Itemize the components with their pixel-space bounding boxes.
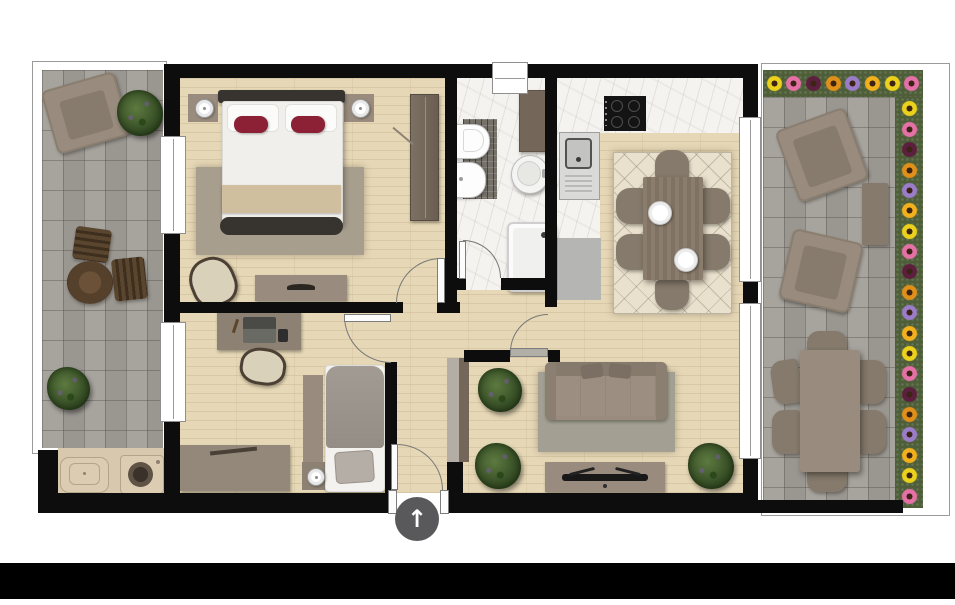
partition-cabinet-brown bbox=[459, 358, 469, 462]
sofa-arm bbox=[656, 362, 667, 420]
wall-living-post bbox=[548, 350, 560, 362]
kitchen-sink-unit bbox=[559, 132, 600, 200]
flower-icon bbox=[901, 100, 918, 117]
outdoor-dining-table bbox=[800, 350, 860, 472]
flower-icon bbox=[805, 75, 822, 92]
armchair-seat bbox=[794, 245, 847, 301]
burner bbox=[628, 100, 640, 112]
wall-partition-stub bbox=[447, 462, 463, 493]
flower-icon bbox=[901, 243, 918, 260]
flower-icon bbox=[901, 141, 918, 158]
bidet bbox=[452, 162, 486, 198]
office-door-leaf bbox=[344, 314, 391, 322]
wall-right-seg bbox=[743, 280, 758, 303]
sofa-arm bbox=[545, 362, 556, 420]
burner bbox=[611, 100, 623, 112]
pen-icon bbox=[232, 319, 239, 333]
flower-icon bbox=[901, 488, 918, 505]
desk bbox=[217, 311, 301, 350]
wall-bedroom-bottom bbox=[180, 302, 403, 313]
wall-bed-bath-divider bbox=[445, 78, 457, 302]
dining-chair bbox=[616, 234, 646, 270]
living-plant bbox=[478, 368, 522, 412]
flower-icon bbox=[901, 386, 918, 403]
sofa-pillow bbox=[608, 363, 631, 379]
wall-living-left bbox=[464, 350, 510, 362]
flower-bed-top bbox=[763, 70, 923, 97]
flower-icon bbox=[901, 406, 918, 423]
bedroom-window bbox=[160, 136, 186, 234]
washer-knob bbox=[156, 460, 160, 464]
flower-icon bbox=[825, 75, 842, 92]
bathroom-door-leaf bbox=[459, 241, 466, 279]
flower-icon bbox=[901, 223, 918, 240]
plate-icon bbox=[674, 248, 698, 272]
sofa bbox=[545, 362, 667, 420]
office-window bbox=[160, 322, 186, 422]
flower-icon bbox=[901, 345, 918, 362]
wall-right-seg bbox=[743, 64, 758, 117]
wall-bath-bottom-left bbox=[445, 278, 466, 290]
terrace-side-table bbox=[862, 183, 888, 245]
flower-icon bbox=[901, 447, 918, 464]
dining-chair bbox=[700, 188, 730, 224]
plate-icon bbox=[648, 201, 672, 225]
entrance-arrow-icon: ↑ bbox=[395, 497, 439, 541]
phone-icon bbox=[278, 329, 288, 342]
sink-basin bbox=[565, 138, 592, 169]
flower-icon bbox=[901, 121, 918, 138]
toilet bbox=[452, 124, 490, 159]
table-lamp-icon bbox=[195, 99, 214, 118]
flower-icon bbox=[901, 426, 918, 443]
outdoor-chair bbox=[858, 360, 886, 404]
wall-bath-right bbox=[545, 78, 557, 307]
basin-inner bbox=[517, 161, 541, 186]
washer-door bbox=[128, 462, 153, 487]
kitchen-terrace-door bbox=[739, 117, 761, 282]
single-bed bbox=[325, 365, 385, 492]
flower-icon bbox=[785, 75, 802, 92]
living-plant bbox=[688, 443, 734, 489]
bed-throw-blanket bbox=[222, 185, 341, 213]
dining-chair bbox=[655, 150, 689, 180]
living-plant bbox=[475, 443, 521, 489]
wall-bottom-right bbox=[443, 493, 758, 513]
armchair-seat bbox=[59, 89, 114, 140]
flower-icon bbox=[844, 75, 861, 92]
flower-icon bbox=[766, 75, 783, 92]
drainboard bbox=[565, 175, 592, 194]
flower-icon bbox=[901, 263, 918, 280]
cooktop bbox=[604, 96, 646, 131]
flower-icon bbox=[901, 304, 918, 321]
tv-sideboard bbox=[545, 462, 665, 492]
laundry-sink bbox=[60, 457, 109, 493]
table-lamp-icon bbox=[351, 99, 370, 118]
cooktop-controls bbox=[605, 101, 607, 126]
bed-footer bbox=[220, 217, 343, 235]
floor-plan-canvas: ↑ bbox=[0, 0, 955, 605]
wall-bottom-terrace-ext bbox=[758, 500, 903, 513]
footer-bar bbox=[0, 563, 955, 599]
red-accent-pillow bbox=[291, 116, 325, 133]
wall-laundry-left bbox=[38, 450, 58, 493]
wardrobe bbox=[410, 94, 439, 221]
slat-chair bbox=[111, 256, 148, 301]
kitchen-base-cabinet bbox=[557, 238, 601, 300]
partition-cabinet-gray bbox=[447, 358, 459, 462]
bathroom-window bbox=[492, 62, 528, 94]
flower-icon bbox=[901, 467, 918, 484]
flower-bed-right bbox=[895, 97, 923, 508]
flower-icon bbox=[901, 182, 918, 199]
burner bbox=[611, 116, 623, 128]
single-bed-duvet bbox=[326, 366, 384, 448]
terrace-shrub bbox=[47, 367, 90, 410]
drain-dot bbox=[83, 472, 86, 475]
flower-icon bbox=[901, 284, 918, 301]
sofa-back bbox=[545, 362, 667, 376]
entrance-arrow-glyph: ↑ bbox=[407, 507, 427, 531]
flower-icon bbox=[901, 325, 918, 342]
entrance-jamb bbox=[440, 490, 449, 514]
wall-left bbox=[164, 64, 180, 493]
armchair-seat bbox=[792, 125, 853, 189]
sideboard-decor bbox=[210, 447, 257, 456]
flower-icon bbox=[901, 162, 918, 179]
bedroom-door-leaf bbox=[437, 258, 445, 303]
wall-bedroom-bottom-post bbox=[437, 302, 460, 313]
single-bed-pillow bbox=[334, 450, 375, 485]
bidet-faucet-dot bbox=[459, 177, 463, 181]
wall-top bbox=[164, 64, 758, 78]
flower-icon bbox=[864, 75, 881, 92]
wall-right-seg bbox=[743, 457, 758, 493]
slat-chair bbox=[72, 226, 112, 264]
toilet-seat-line bbox=[463, 129, 484, 152]
laptop-icon bbox=[243, 317, 276, 343]
entrance-door-leaf bbox=[391, 444, 398, 490]
round-washbasin bbox=[511, 155, 549, 194]
living-door-leaf bbox=[510, 348, 548, 357]
flower-icon bbox=[901, 365, 918, 382]
living-terrace-door bbox=[739, 303, 761, 459]
bedroom-dresser bbox=[255, 275, 347, 301]
sofa-seat bbox=[556, 376, 656, 416]
wall-bottom-left bbox=[38, 493, 395, 513]
dining-chair bbox=[655, 280, 689, 310]
washing-machine bbox=[120, 455, 164, 494]
tv-stand-dot bbox=[603, 484, 607, 488]
burner bbox=[628, 116, 640, 128]
flower-icon bbox=[903, 75, 920, 92]
flower-icon bbox=[901, 202, 918, 219]
table-lamp-icon bbox=[307, 468, 325, 486]
wardrobe-divider bbox=[425, 97, 426, 218]
outdoor-chair bbox=[772, 410, 800, 454]
outdoor-chair bbox=[858, 410, 886, 454]
red-accent-pillow bbox=[234, 116, 268, 133]
office-sideboard bbox=[180, 445, 290, 491]
dining-chair bbox=[616, 188, 646, 224]
potted-plant bbox=[117, 90, 163, 136]
sink-drain-dot bbox=[576, 157, 581, 162]
bed-bench bbox=[303, 375, 323, 463]
dresser-decor bbox=[287, 284, 315, 290]
round-coffee-table bbox=[67, 261, 113, 304]
dining-chair bbox=[700, 234, 730, 270]
flower-icon bbox=[884, 75, 901, 92]
